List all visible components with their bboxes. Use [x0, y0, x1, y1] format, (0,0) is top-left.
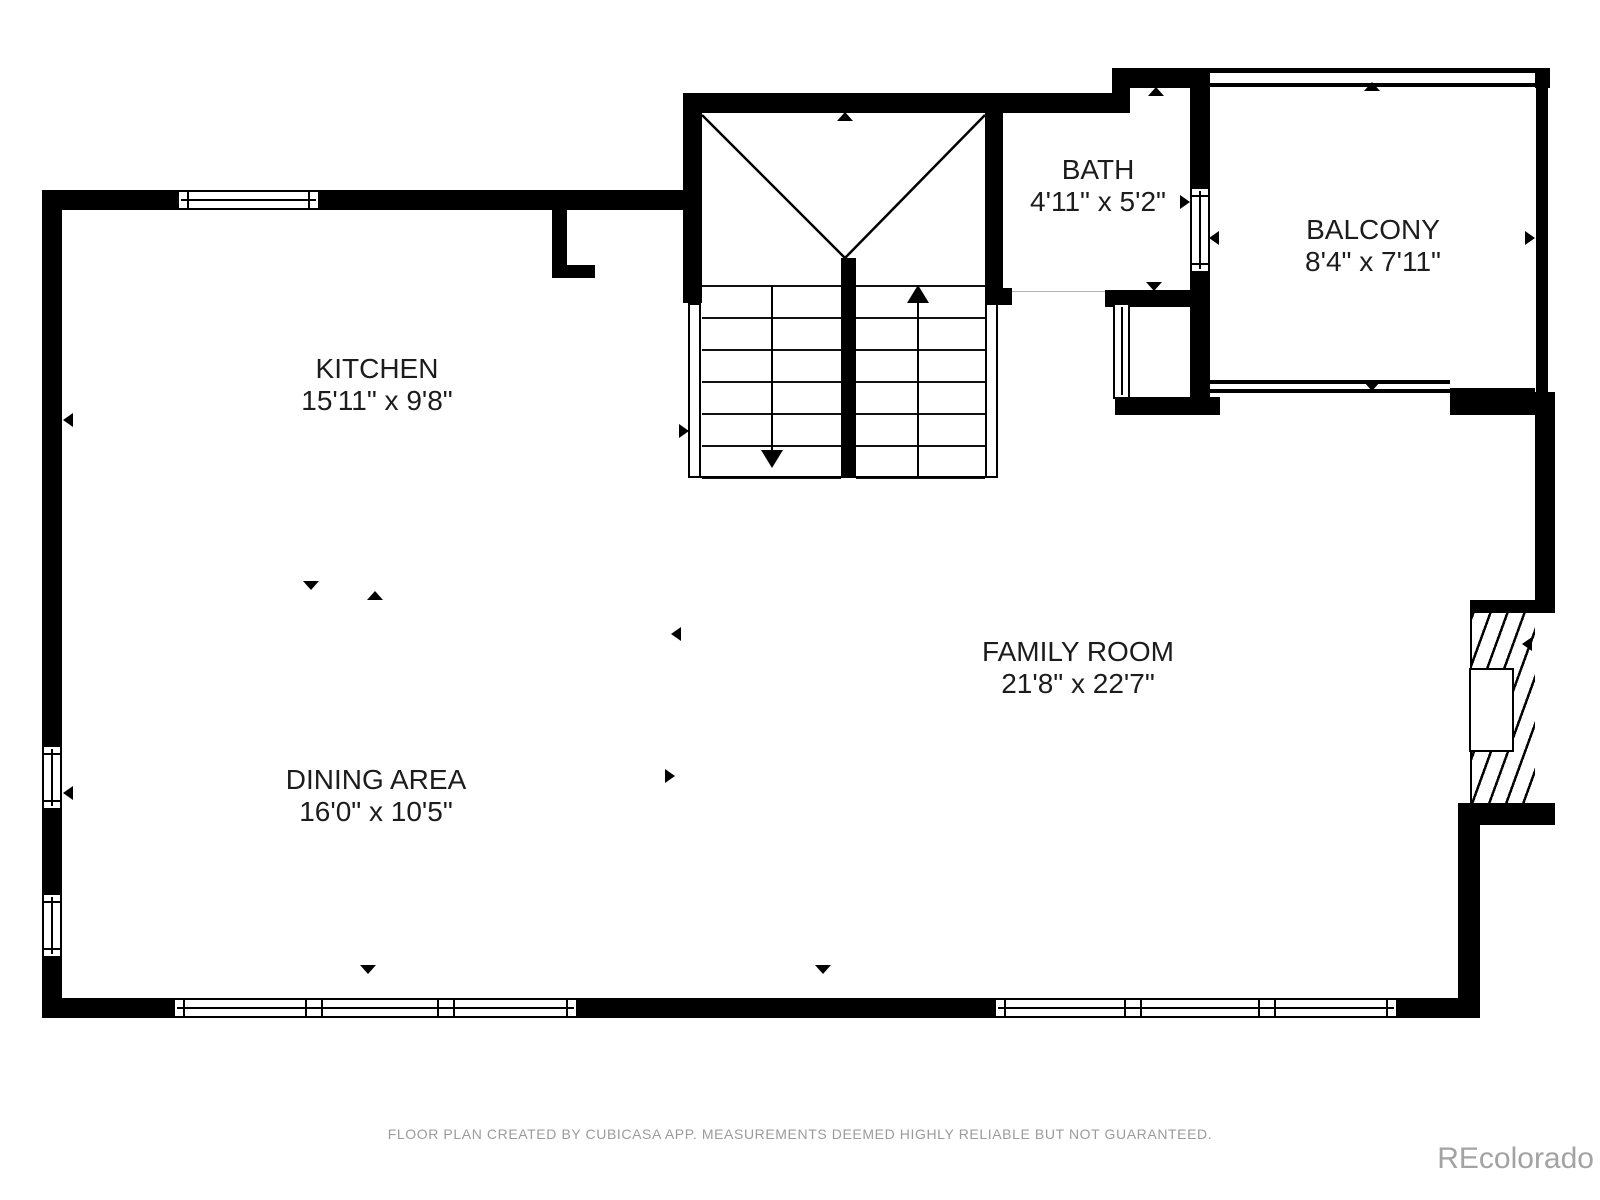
wall-top-kitchen: [42, 190, 683, 210]
window-cap: [183, 1000, 185, 1016]
window-glass-line: [51, 897, 53, 954]
window-cap: [44, 753, 60, 755]
window-glass-line: [177, 1007, 574, 1009]
room-label-dining: DINING AREA 16'0" x 10'5": [286, 764, 466, 828]
dim-marker-bath-left: [993, 195, 1003, 209]
dim-marker-stair-rail: [679, 424, 689, 438]
window-bottom-left: [173, 998, 578, 1018]
window-mullion: [437, 1000, 439, 1016]
floor-plan: KITCHEN 15'11" x 9'8" DINING AREA 16'0" …: [0, 0, 1600, 1200]
window-mullion: [1124, 1000, 1126, 1016]
window-glass-line: [51, 749, 53, 806]
dim-marker-balcony-left: [1209, 231, 1219, 245]
dim-marker-left-wall-upper: [63, 413, 73, 427]
dim-marker-kitchen-up: [367, 591, 383, 600]
balcony-railing-bottom-inner: [1210, 389, 1450, 393]
window-mullion: [1140, 1000, 1142, 1016]
stair-bottom-edge: [688, 476, 998, 478]
window-mullion: [1274, 1000, 1276, 1016]
wall-kitchen-alcove-stub: [552, 265, 595, 278]
dim-marker-balcony-up: [1364, 82, 1380, 91]
dim-marker-family-left: [671, 627, 681, 641]
room-dims: 21'8" x 22'7": [982, 668, 1174, 700]
room-dims: 15'11" x 9'8": [301, 385, 452, 417]
stair-walkline-up: [917, 300, 919, 477]
fireplace-firebox: [1469, 668, 1514, 752]
window-left-upper: [42, 745, 62, 810]
wall-balcony-top-corner: [1535, 68, 1550, 88]
window-glass-line: [1199, 191, 1201, 269]
room-label-balcony: BALCONY 8'4" x 7'11": [1305, 214, 1441, 278]
wall-shaft-bottom: [1115, 397, 1220, 415]
window-shaft-left: [1113, 303, 1130, 399]
window-cap: [1192, 195, 1208, 197]
balcony-railing-top-outer: [1210, 68, 1536, 73]
dim-marker-left-wall-lower: [63, 786, 73, 800]
window-glass-line: [998, 1007, 1394, 1009]
room-dims: 8'4" x 7'11": [1305, 246, 1441, 278]
window-cap: [1004, 1000, 1006, 1016]
window-mullion: [321, 1000, 323, 1016]
window-mullion: [1258, 1000, 1260, 1016]
stair-up-arrow-icon: [907, 285, 929, 303]
window-cap: [44, 948, 60, 950]
dim-marker-bath-right: [1180, 195, 1190, 209]
wall-family-right-upper: [1535, 392, 1555, 613]
window-cap: [1192, 263, 1208, 265]
stair-rail-right: [985, 303, 998, 478]
window-cap: [44, 901, 60, 903]
stair-walkline-down: [771, 285, 773, 453]
room-name: DINING AREA: [286, 764, 466, 796]
wall-fireplace-top-cap: [1470, 600, 1537, 613]
recolorado-watermark: REcolorado: [1437, 1142, 1594, 1176]
window-cap: [187, 192, 189, 208]
dim-marker-bath-up: [1148, 87, 1164, 96]
stair-treads-right-flight: [856, 285, 985, 479]
window-cap: [566, 1000, 568, 1016]
room-name: BATH: [1030, 154, 1166, 186]
window-glass-line: [181, 199, 316, 201]
window-left-lower: [42, 893, 62, 958]
dim-marker-bottom-left: [360, 965, 376, 974]
stair-center-divider: [841, 258, 856, 477]
dim-marker-balcony-right: [1525, 231, 1535, 245]
stair-down-arrow-icon: [761, 450, 783, 468]
bath-door-threshold: [1012, 291, 1105, 292]
stair-rail-left: [688, 303, 701, 478]
window-cap: [308, 192, 310, 208]
balcony-railing-right: [1536, 88, 1548, 392]
room-name: FAMILY ROOM: [982, 636, 1174, 668]
dim-marker-fireplace: [1522, 637, 1532, 651]
wall-fireplace-bottom-cap: [1458, 803, 1555, 825]
dim-marker-bottom-right: [815, 965, 831, 974]
room-dims: 16'0" x 10'5": [286, 796, 466, 828]
dim-marker-bath-down: [1146, 282, 1162, 291]
window-bottom-right: [994, 998, 1398, 1018]
wall-balcony-bottom-stub: [1450, 388, 1535, 415]
window-mullion: [453, 1000, 455, 1016]
wall-family-right-lower: [1458, 825, 1480, 1018]
room-label-kitchen: KITCHEN 15'11" x 9'8": [301, 353, 452, 417]
stair-winder-lines: [683, 93, 1003, 283]
dim-marker-family-right: [665, 769, 675, 783]
balcony-railing-bottom-outer: [1210, 380, 1450, 384]
room-label-bath: BATH 4'11" x 5'2": [1030, 154, 1166, 218]
dim-marker-kitchen-down: [303, 581, 319, 590]
room-name: BALCONY: [1305, 214, 1441, 246]
disclaimer-text: FLOOR PLAN CREATED BY CUBICASA APP. MEAS…: [0, 1126, 1600, 1142]
window-cap: [44, 800, 60, 802]
window-cap: [1386, 1000, 1388, 1016]
window-mullion: [305, 1000, 307, 1016]
window-bath-balcony: [1190, 187, 1210, 273]
room-name: KITCHEN: [301, 353, 452, 385]
window-kitchen-top: [177, 190, 320, 210]
room-dims: 4'11" x 5'2": [1030, 186, 1166, 218]
dim-marker-balcony-down: [1364, 382, 1380, 391]
dim-marker-stairtop: [837, 112, 853, 121]
window-glass-line: [1121, 307, 1123, 395]
room-label-family: FAMILY ROOM 21'8" x 22'7": [982, 636, 1174, 700]
